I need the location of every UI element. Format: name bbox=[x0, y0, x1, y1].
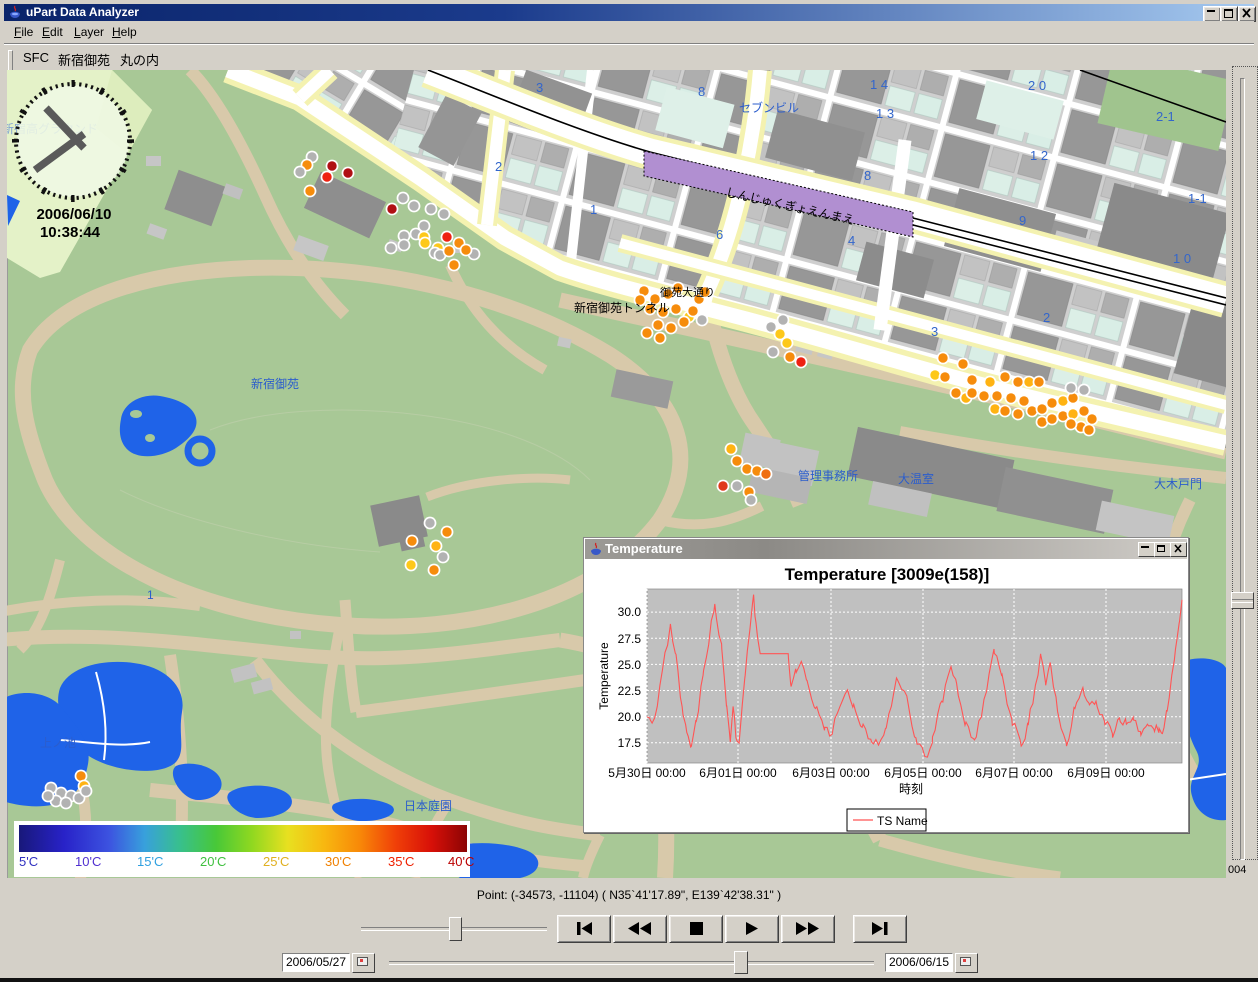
svg-text:新宿御苑: 新宿御苑 bbox=[251, 376, 299, 391]
svg-text:8: 8 bbox=[864, 168, 871, 183]
svg-text:27.5: 27.5 bbox=[618, 632, 642, 646]
svg-text:10:38:44: 10:38:44 bbox=[40, 224, 101, 241]
svg-text:1 2: 1 2 bbox=[1030, 148, 1048, 163]
svg-text:1: 1 bbox=[147, 588, 154, 602]
svg-text:御苑大通り: 御苑大通り bbox=[660, 285, 715, 299]
svg-text:4: 4 bbox=[848, 233, 855, 248]
svg-text:6: 6 bbox=[716, 227, 723, 242]
svg-text:1 4: 1 4 bbox=[870, 77, 888, 92]
svg-text:6月07日 00:00: 6月07日 00:00 bbox=[975, 766, 1053, 780]
svg-text:セブンビル: セブンビル bbox=[739, 100, 799, 115]
svg-text:20'C: 20'C bbox=[200, 854, 226, 869]
svg-text:5'C: 5'C bbox=[19, 854, 38, 869]
svg-text:2-1: 2-1 bbox=[1156, 109, 1175, 124]
svg-text:30.0: 30.0 bbox=[618, 605, 642, 619]
svg-text:Temperature: Temperature bbox=[597, 642, 611, 710]
svg-text:1 3: 1 3 bbox=[876, 106, 894, 121]
svg-text:新宿御苑トンネル: 新宿御苑トンネル bbox=[574, 300, 670, 315]
svg-text:15'C: 15'C bbox=[137, 854, 163, 869]
svg-text:6月05日 00:00: 6月05日 00:00 bbox=[884, 766, 962, 780]
svg-text:6月03日 00:00: 6月03日 00:00 bbox=[792, 766, 870, 780]
svg-text:35'C: 35'C bbox=[388, 854, 414, 869]
svg-text:40'C: 40'C bbox=[448, 854, 474, 869]
svg-text:10'C: 10'C bbox=[75, 854, 101, 869]
svg-text:大温室: 大温室 bbox=[898, 471, 934, 486]
svg-text:2: 2 bbox=[1043, 310, 1050, 325]
svg-text:3: 3 bbox=[931, 324, 938, 339]
svg-text:TS Name: TS Name bbox=[877, 814, 928, 828]
svg-text:Temperature [3009e(158)]: Temperature [3009e(158)] bbox=[785, 565, 990, 584]
svg-text:2006/06/10: 2006/06/10 bbox=[36, 206, 111, 223]
svg-text:6月09日 00:00: 6月09日 00:00 bbox=[1067, 766, 1145, 780]
svg-text:管理事務所: 管理事務所 bbox=[798, 468, 858, 483]
svg-text:上ノ池: 上ノ池 bbox=[40, 736, 76, 750]
svg-text:2: 2 bbox=[495, 159, 502, 174]
svg-text:22.5: 22.5 bbox=[618, 684, 642, 698]
svg-text:25'C: 25'C bbox=[263, 854, 289, 869]
svg-text:6月01日 00:00: 6月01日 00:00 bbox=[699, 766, 777, 780]
svg-text:1 0: 1 0 bbox=[1173, 251, 1191, 266]
svg-text:大木戸門: 大木戸門 bbox=[1154, 477, 1202, 491]
svg-text:8: 8 bbox=[698, 84, 705, 99]
svg-text:5月30日 00:00: 5月30日 00:00 bbox=[608, 766, 686, 780]
svg-text:1: 1 bbox=[590, 202, 597, 217]
svg-text:時刻: 時刻 bbox=[899, 782, 923, 796]
svg-text:2 0: 2 0 bbox=[1028, 78, 1046, 93]
svg-text:3: 3 bbox=[536, 80, 543, 95]
svg-text:1-1: 1-1 bbox=[1188, 191, 1207, 206]
svg-text:17.5: 17.5 bbox=[618, 736, 642, 750]
svg-text:20.0: 20.0 bbox=[618, 710, 642, 724]
svg-text:日本庭園: 日本庭園 bbox=[404, 798, 452, 813]
svg-text:9: 9 bbox=[1019, 213, 1026, 228]
svg-text:30'C: 30'C bbox=[325, 854, 351, 869]
svg-text:25.0: 25.0 bbox=[618, 658, 642, 672]
